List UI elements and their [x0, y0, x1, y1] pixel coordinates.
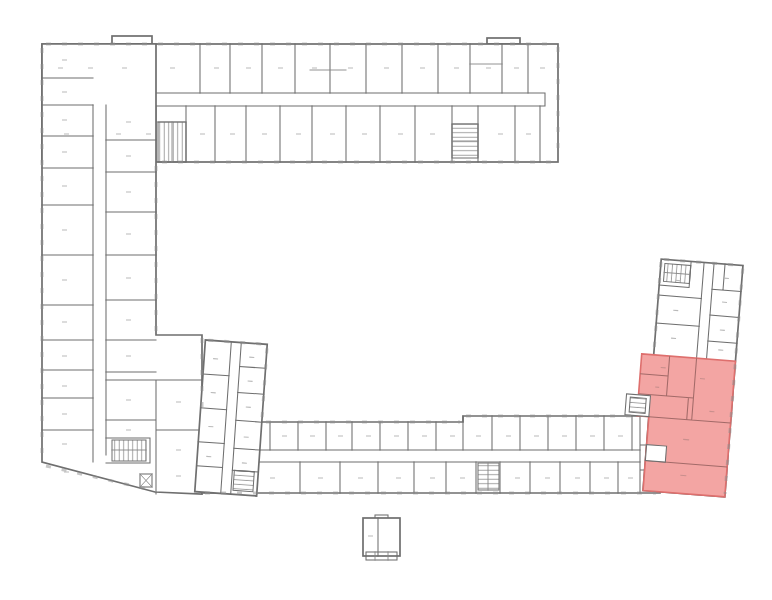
highlighted-unit-service-room	[645, 445, 666, 463]
central-annex	[195, 340, 267, 496]
floor-plan-page	[0, 0, 772, 600]
south-wing	[202, 416, 660, 493]
stairwell-southwest-icon	[112, 440, 146, 461]
outbuilding-outline	[363, 518, 400, 556]
north-wing-roof-bump-2	[487, 38, 520, 44]
stairwell-south-icon	[478, 463, 499, 490]
floor-plan-canvas	[0, 0, 772, 600]
south-wing-outline	[202, 416, 660, 493]
central-annex-outline	[195, 340, 267, 496]
outbuilding	[363, 515, 400, 560]
stairwell-annex-icon	[233, 470, 254, 491]
stairwell-junction-icon	[629, 397, 646, 413]
